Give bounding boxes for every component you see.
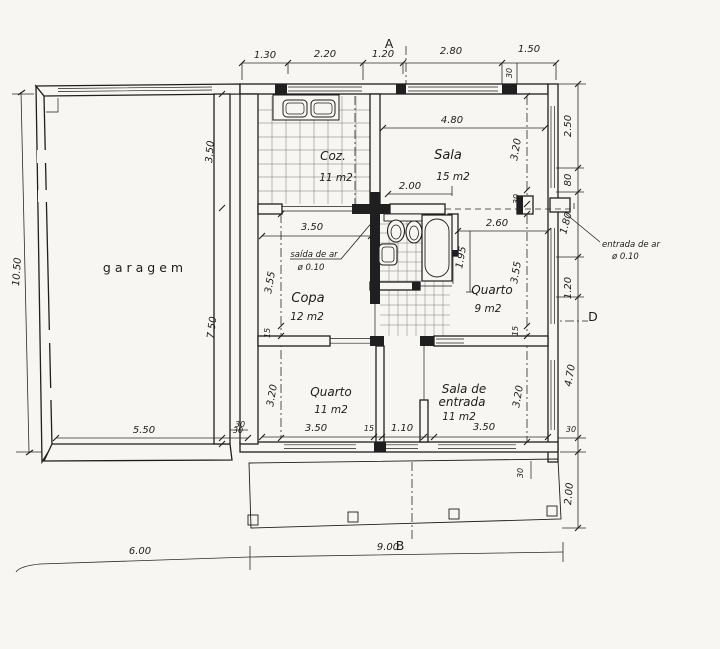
- dim-inner-entry: 3.20: [511, 385, 526, 409]
- room-label-kitchen: Coz.: [320, 149, 346, 163]
- room-area-entry: 11 m2: [442, 411, 476, 423]
- dim-top-1: 1.30: [254, 50, 276, 61]
- room-label-entry-1: Sala de: [442, 382, 486, 396]
- mid-wall-a: [258, 204, 282, 214]
- dim-left-total: 10.50: [11, 257, 24, 286]
- dim-living-width: 4.80: [441, 115, 463, 126]
- dim-garage-wall2: 30: [235, 420, 245, 429]
- dim-quarto11-depth: 3.20: [265, 384, 280, 408]
- dim-top-3: 1.20: [372, 49, 394, 60]
- dim-top-5: 1.50: [518, 44, 540, 55]
- dim-right-porch: 2.00: [563, 482, 576, 505]
- dim-garage-upper: 3.50: [204, 140, 217, 163]
- dim-garage-width: 5.50: [133, 425, 155, 436]
- porch-outline: [249, 459, 561, 528]
- air-inlet-label: entrada de ar: [602, 240, 660, 250]
- dim-living-door: 2.00: [399, 181, 421, 192]
- garage-bottom-wall: [44, 444, 232, 461]
- dim-quarto11-wall: 15: [364, 424, 374, 433]
- room-label-quarto9: Quarto: [471, 283, 512, 297]
- dim-bottom-right: 9.00: [377, 542, 399, 553]
- blueprint-page: A B D garagem Coz. 11 m2 Sala 15 m2 Copa…: [0, 0, 720, 649]
- dim-inner-wall2: 15: [511, 326, 520, 336]
- dim-porch-wall: 30: [516, 468, 525, 478]
- dim-quarto11-width: 3.50: [305, 423, 327, 434]
- dim-right-2: 80: [563, 174, 574, 187]
- floor-plan-drawing: A B D garagem Coz. 11 m2 Sala 15 m2 Copa…: [0, 0, 720, 649]
- dim-copa-depth: 3.55: [263, 271, 278, 295]
- dim-top-wall: 30: [505, 68, 514, 78]
- garage-left-wall: [36, 86, 52, 462]
- porch-column: [547, 506, 557, 516]
- air-inlet-diameter: ø 0.10: [611, 252, 639, 262]
- porch-column: [348, 512, 358, 522]
- kitchen-sink: [273, 95, 339, 120]
- air-outlet-diameter: ø 0.10: [297, 263, 325, 273]
- bath-top-wall: [390, 204, 445, 214]
- copa-doorway: [282, 207, 352, 212]
- dim-top-4: 2.80: [440, 46, 462, 57]
- dim-top-2: 2.20: [314, 49, 336, 60]
- dim-quarto9-width: 2.60: [486, 218, 508, 229]
- room-area-kitchen: 11 m2: [319, 172, 353, 184]
- dim-bottom-left: 6.00: [129, 546, 151, 557]
- garage-corner-step: [46, 98, 58, 112]
- room-label-quarto11: Quarto: [310, 385, 351, 399]
- mid-bottom-wall-b: [434, 336, 548, 346]
- house-bottom-wall: [240, 442, 558, 452]
- air-inlet-step: [550, 198, 570, 212]
- dim-right-wall: 30: [566, 425, 576, 434]
- dim-right-5: 4.70: [563, 364, 578, 388]
- room-area-living: 15 m2: [436, 171, 470, 183]
- porch-column: [248, 515, 258, 525]
- dim-inner-sala: 3.20: [509, 138, 524, 162]
- porch-column: [449, 509, 459, 519]
- room-label-copa: Copa: [291, 291, 324, 306]
- dim-right-4: 1.20: [563, 277, 574, 299]
- room-label-garage: garagem: [103, 260, 187, 275]
- quarto11-doorway: [330, 339, 370, 344]
- house-right-wall: [548, 84, 558, 462]
- dim-copa-width: 3.50: [301, 222, 323, 233]
- room-area-quarto11: 11 m2: [314, 404, 348, 416]
- dim-right-3: 1.80: [558, 211, 574, 235]
- house-left-wall: [240, 94, 258, 444]
- section-marker-d: D: [588, 309, 598, 324]
- dim-inner-quarto: 3.55: [509, 261, 524, 285]
- dim-inner-wall: 30: [512, 194, 521, 204]
- dim-hall-width: 1.10: [391, 423, 413, 434]
- cistern: [384, 214, 424, 221]
- hall-left-wall: [376, 346, 384, 442]
- hall-right-wall: [420, 400, 428, 442]
- dim-copa-wall: 15: [263, 328, 272, 338]
- room-area-copa: 12 m2: [290, 311, 324, 323]
- air-outlet-label: saída de ar: [290, 250, 338, 260]
- porch: [248, 459, 561, 528]
- room-area-quarto9: 9 m2: [475, 303, 502, 315]
- dim-entry-width: 3.50: [473, 422, 495, 433]
- room-label-living: Sala: [434, 148, 462, 163]
- dim-right-1: 2.50: [563, 115, 574, 137]
- kitchen-living-wall: [370, 94, 380, 206]
- room-label-entry-2: entrada: [439, 395, 486, 409]
